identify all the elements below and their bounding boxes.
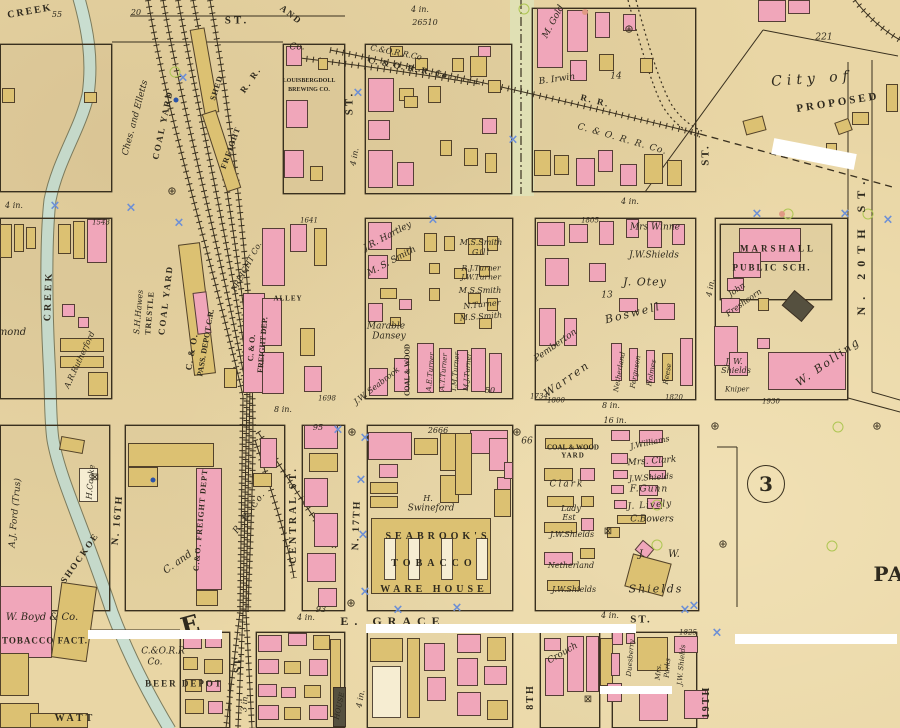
- street-name-label: COAL & WOOD: [547, 445, 599, 452]
- building: [314, 513, 338, 547]
- lot-number-label: 55: [52, 11, 62, 19]
- street-name-label: N. 20TH ST.: [855, 175, 867, 316]
- building: [196, 590, 218, 606]
- cross-mark: ×: [428, 214, 439, 227]
- building: [309, 453, 338, 472]
- owner-name-label: Clark: [550, 481, 585, 490]
- cross-mark: ×: [126, 202, 137, 215]
- cross-mark: ×: [883, 214, 894, 227]
- building: [258, 705, 279, 720]
- pipe-size-label: 4 in.: [601, 612, 619, 620]
- building: [620, 164, 637, 186]
- building: [204, 659, 223, 674]
- owner-name-label: C.Bowers: [630, 516, 673, 525]
- owner-name-label: Shields: [629, 584, 684, 595]
- atlas-map-sheet: ××××××××××××××××××××⊕⊕⊕⊕⊕⊕⊕⊕⊠⊠⊠ CREEK552…: [0, 0, 900, 728]
- building: [639, 693, 668, 721]
- building: [310, 166, 323, 181]
- building: [537, 222, 565, 246]
- building: [455, 433, 472, 495]
- building: [304, 685, 321, 698]
- owner-name-label: Shields: [721, 367, 751, 375]
- building: [224, 368, 237, 388]
- street-name-label: CREEK: [43, 271, 55, 322]
- building: [314, 228, 327, 266]
- building: [611, 653, 620, 676]
- building: [128, 443, 214, 467]
- building: [429, 288, 440, 301]
- building: [589, 263, 606, 282]
- building: [281, 687, 296, 698]
- street-name-label: TOBACCO FACT.: [2, 637, 88, 646]
- blue-dot-mark: [174, 98, 179, 103]
- owner-name-label: Dansey: [372, 333, 405, 342]
- cross-mark: ×: [840, 208, 851, 221]
- building: [368, 303, 383, 322]
- building: [300, 328, 315, 356]
- cross-mark: ×: [50, 200, 61, 213]
- owner-name-label: Swineford: [408, 505, 455, 514]
- lot-number-label: 1820: [665, 395, 683, 402]
- pipe-size-label: 4 in.: [411, 6, 429, 14]
- owner-name-label: R.J.Turner: [461, 264, 500, 272]
- building: [569, 224, 588, 243]
- building: [262, 228, 285, 286]
- building: [318, 58, 328, 70]
- lot-number-label: 20: [131, 9, 141, 17]
- street-name-label: WARE HOUSE: [380, 585, 488, 595]
- cross-mark: ×: [333, 424, 344, 437]
- street-name-label: TOBACCO: [391, 559, 476, 569]
- owner-name-label: J.W.Shields: [550, 531, 594, 539]
- owner-name-label: J.W.Shields: [552, 586, 596, 594]
- street-name-label: ALLEY: [273, 296, 302, 303]
- pipe-size-label: 3 in.: [240, 694, 250, 713]
- owner-name-label: Co.: [147, 659, 162, 668]
- building: [399, 299, 412, 310]
- building: [370, 638, 403, 662]
- building: [581, 496, 594, 507]
- owner-name-label: J. W.: [725, 358, 742, 366]
- building: [611, 485, 624, 494]
- building: [567, 10, 588, 52]
- pink-dot-mark: [779, 211, 785, 217]
- building: [304, 366, 322, 392]
- building: [380, 288, 397, 299]
- circle-plus-mark: ⊕: [346, 599, 355, 610]
- building: [208, 701, 223, 714]
- building: [258, 659, 279, 674]
- building: [444, 236, 455, 251]
- building: [758, 298, 769, 311]
- street-name-label: ST.: [701, 144, 712, 165]
- street-name-label: LOUISBERGDOLL: [283, 78, 336, 84]
- owner-name-label: Kniper: [725, 387, 749, 394]
- green-circle-mark: [652, 540, 663, 551]
- building: [611, 453, 628, 464]
- lot-number-label: 1543: [92, 220, 110, 227]
- building: [379, 464, 398, 478]
- building: [576, 158, 595, 186]
- building: [290, 224, 307, 252]
- street-name-label: 8TH: [526, 684, 536, 709]
- building: [680, 338, 693, 386]
- lot-number-label: 1698: [318, 396, 336, 403]
- whiteout-strip: [735, 634, 897, 644]
- cross-mark: ×: [360, 586, 371, 599]
- owner-name-label: mond: [0, 328, 26, 338]
- building: [427, 677, 446, 701]
- owner-name-label: M.S.Smith: [459, 287, 501, 295]
- building: [284, 150, 304, 178]
- circle-plus-mark: ⊕: [624, 25, 633, 36]
- pipe-size-label: 8 in.: [602, 402, 620, 410]
- green-circle-mark: [827, 541, 838, 552]
- building: [534, 150, 551, 176]
- lot-number-label: 50: [485, 387, 495, 395]
- owner-name-label: Marable: [367, 323, 405, 332]
- building: [26, 227, 36, 249]
- large-letter-label: 3: [759, 474, 773, 494]
- lot-number-label: 1641: [300, 218, 318, 225]
- building: [487, 700, 508, 720]
- building: [424, 233, 437, 252]
- building: [440, 140, 452, 156]
- city-block: [0, 44, 112, 192]
- building: [185, 699, 204, 714]
- building: [370, 482, 398, 494]
- lot-number-label: 26510: [412, 19, 437, 27]
- building: [58, 224, 71, 254]
- circle-plus-mark: ⊕: [718, 540, 727, 551]
- pipe-size-label: 4 in.: [621, 198, 639, 206]
- building: [614, 500, 627, 509]
- building: [368, 432, 412, 460]
- green-circle-mark: [170, 67, 181, 78]
- building: [0, 224, 12, 258]
- cross-mark: ×: [174, 217, 185, 230]
- building: [758, 0, 786, 22]
- pipe-size-label: 8 in.: [274, 406, 292, 414]
- building: [429, 263, 440, 274]
- owner-name-label: J. Otey: [623, 277, 667, 288]
- cross-mark: ×: [752, 208, 763, 221]
- building: [886, 84, 898, 112]
- lot-number-label: 1825: [679, 630, 697, 637]
- owner-name-label: Mrs.: [655, 664, 663, 681]
- cross-mark: ×: [712, 627, 723, 640]
- owner-name-label: Gill: [472, 249, 490, 257]
- boxed-x-mark: ⊠: [584, 695, 592, 705]
- whiteout-strip: [366, 624, 636, 633]
- building: [464, 148, 478, 166]
- building: [478, 46, 491, 57]
- street-name-label: ST.: [234, 653, 244, 673]
- building: [485, 153, 497, 173]
- building: [598, 150, 613, 172]
- owner-name-label: Co.: [289, 44, 304, 53]
- street-name-label: YARD: [561, 453, 585, 460]
- building: [488, 80, 501, 93]
- circle-plus-mark: ⊕: [512, 428, 521, 439]
- owner-name-label: C.&O.R.R: [141, 648, 185, 657]
- owner-name-label: Lady: [561, 505, 581, 513]
- building: [304, 478, 328, 507]
- building: [545, 258, 569, 286]
- lot-number-label: 14: [610, 73, 621, 82]
- building: [595, 12, 610, 38]
- building: [368, 120, 390, 140]
- lot-number-label: 95: [313, 424, 323, 432]
- building: [368, 150, 393, 188]
- owner-name-label: W.: [668, 550, 680, 560]
- pipe-size-label: 4 in.: [297, 614, 315, 622]
- building: [457, 658, 478, 686]
- pipe-size-label: 4 in.: [5, 202, 23, 210]
- building: [78, 317, 89, 328]
- building: [62, 304, 75, 317]
- building: [288, 633, 307, 646]
- building: [284, 661, 301, 674]
- building: [0, 653, 29, 696]
- building: [599, 54, 614, 71]
- building: [457, 692, 481, 716]
- whiteout-strip: [600, 686, 672, 694]
- street-name-label: 19TH: [702, 686, 712, 718]
- building: [757, 338, 770, 349]
- street-name-label: N. 17TH: [351, 500, 363, 551]
- building: [73, 221, 85, 259]
- street-name-label: BREWING CO.: [288, 87, 330, 93]
- building: [309, 659, 328, 676]
- street-name-label: CENTRAL ST.: [289, 466, 299, 564]
- building: [260, 438, 277, 468]
- lot-number-label: 13: [601, 292, 612, 301]
- building: [457, 634, 481, 653]
- street-name-label: BEER DEPOT: [145, 680, 223, 689]
- building: [640, 58, 653, 73]
- building: [613, 470, 628, 479]
- building: [554, 155, 569, 175]
- street-name-label: WATT: [55, 714, 96, 724]
- building: [580, 548, 595, 559]
- building: [258, 635, 282, 652]
- large-letter-label: PA: [873, 564, 900, 584]
- owner-name-label: J.W.Shields: [629, 252, 679, 261]
- owner-name-label: F.Gunn: [630, 486, 668, 495]
- building: [586, 636, 599, 692]
- building: [2, 88, 15, 103]
- building: [407, 638, 420, 718]
- building: [484, 666, 507, 685]
- green-circle-mark: [519, 4, 530, 15]
- lot-number-label: 221: [815, 34, 832, 43]
- building: [84, 92, 97, 103]
- owner-name-label: J.W.Turner: [461, 273, 501, 281]
- pink-dot-mark: [582, 9, 588, 15]
- street-name-label: ST.: [225, 16, 249, 27]
- cross-mark: ×: [452, 602, 463, 615]
- building: [788, 0, 810, 14]
- pipe-size-label: 16 in.: [604, 417, 627, 425]
- lot-number-label: 1805: [581, 218, 599, 225]
- owner-name-label: Mrs Winne: [630, 224, 680, 233]
- lot-number-label: 1800: [547, 398, 565, 405]
- lot-number-label: 1930: [762, 399, 780, 406]
- lot-number-label: 66: [521, 438, 532, 447]
- building: [452, 58, 464, 72]
- street-name-label: COAL & WOOD: [405, 344, 412, 396]
- building: [504, 462, 513, 479]
- lot-number-label: 93: [316, 606, 326, 614]
- building: [599, 221, 614, 245]
- circle-plus-mark: ⊕: [872, 422, 881, 433]
- building: [487, 637, 506, 661]
- owner-name-label: H.: [423, 495, 433, 503]
- building: [307, 553, 336, 582]
- building: [644, 154, 663, 184]
- owner-name-label: W. Boyd & Co.: [6, 613, 78, 623]
- building: [14, 224, 24, 252]
- building: [424, 643, 445, 671]
- building: [428, 86, 441, 103]
- building: [309, 705, 328, 720]
- building: [471, 348, 486, 392]
- owner-name-label: J.: [639, 550, 645, 560]
- building: [667, 160, 682, 186]
- circle-plus-mark: ⊕: [167, 187, 176, 198]
- building: [258, 684, 277, 697]
- cross-mark: ×: [689, 600, 700, 613]
- building: [482, 118, 497, 134]
- building: [286, 100, 308, 128]
- owner-name-label: Netherland: [548, 562, 594, 570]
- circle-plus-mark: ⊕: [347, 428, 356, 439]
- circle-plus-mark: ⊕: [710, 422, 719, 433]
- blue-dot-mark: [151, 478, 156, 483]
- building: [852, 112, 869, 125]
- boxed-x-mark: ⊠: [604, 527, 612, 537]
- cross-mark: ×: [356, 474, 367, 487]
- building: [611, 430, 630, 441]
- cross-mark: ×: [508, 134, 519, 147]
- building: [470, 56, 487, 77]
- building: [368, 78, 394, 112]
- building: [88, 372, 108, 396]
- building: [476, 538, 488, 580]
- building: [372, 666, 401, 718]
- green-circle-mark: [833, 422, 844, 433]
- building: [397, 162, 414, 186]
- street-name-label: SEABROOK'S: [385, 532, 490, 542]
- building: [253, 473, 272, 487]
- lot-number-label: 1734: [530, 394, 548, 401]
- building: [414, 438, 438, 455]
- building: [494, 489, 511, 517]
- lot-number-label: 2666: [428, 427, 448, 435]
- owner-name-label: M.S.Smith: [460, 239, 502, 247]
- street-name-label: PUBLIC SCH.: [732, 264, 811, 273]
- owner-name-label: Est: [562, 514, 575, 522]
- street-name-label: ST.: [345, 91, 356, 115]
- street-name-label: MARSHALL: [740, 245, 816, 254]
- building: [313, 635, 330, 650]
- cross-mark: ×: [360, 432, 371, 445]
- building: [370, 496, 398, 508]
- building: [404, 96, 418, 108]
- building: [183, 657, 198, 670]
- building: [284, 707, 301, 720]
- whiteout-strip: [88, 630, 222, 639]
